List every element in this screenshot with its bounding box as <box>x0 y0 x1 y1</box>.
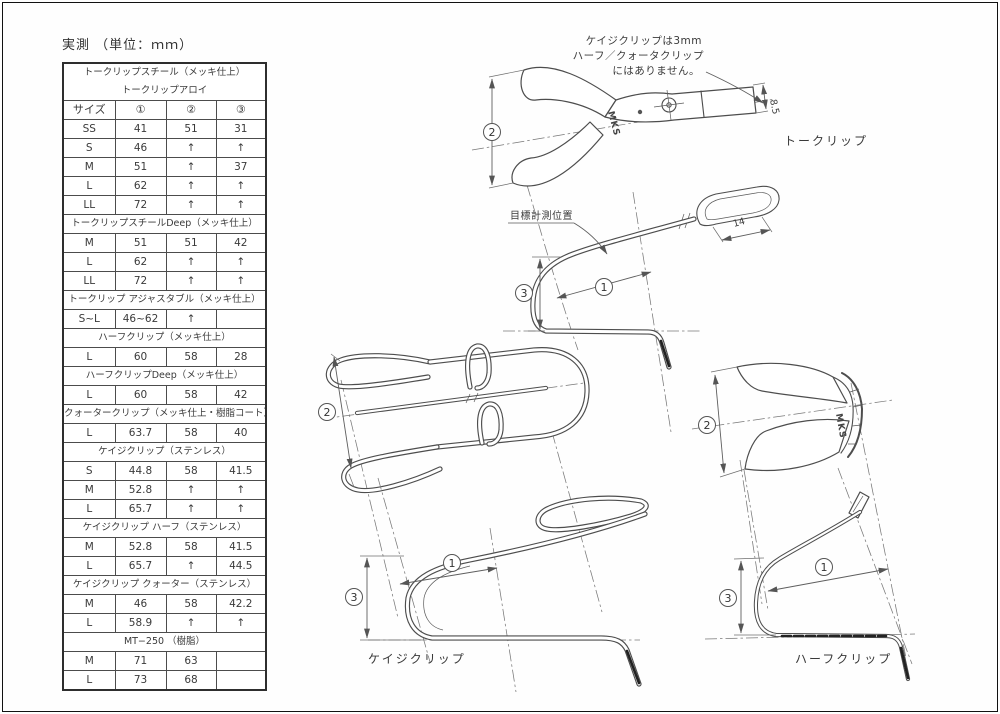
toe-clip-side-view: 3 1 14 目標計測位置 <box>503 186 779 367</box>
dim-circle-2: 2 <box>319 404 336 421</box>
small-rivet-icon <box>638 110 642 114</box>
dim-14: 14 <box>732 216 747 230</box>
dim-circle-3: 3 <box>516 285 533 302</box>
clip-profile-inner <box>533 219 694 367</box>
half-clip-top-view: MKS 2 <box>692 363 906 658</box>
cage-clip-side-view: 1 3 ケイジクリップ <box>346 478 647 692</box>
upper-prong <box>521 67 616 117</box>
lower-blade <box>745 419 849 470</box>
mount-stub <box>627 651 639 683</box>
svg-text:3: 3 <box>351 591 358 604</box>
spec-sheet-page: 実測 （単位：ｍｍ） トークリップスチール（メッキ仕上）トークリップアロイサイズ… <box>0 0 1000 714</box>
cage-note-line3: にはありません。 <box>612 65 700 77</box>
cage-clip-top-view: 2 <box>319 346 603 618</box>
dim-circle-3: 3 <box>720 590 737 607</box>
upper-blade <box>737 363 847 403</box>
mount-stub <box>901 648 908 678</box>
cage-clip-label: ケイジクリップ <box>368 652 466 666</box>
lower-prong <box>512 122 603 186</box>
half-clip-side-view: 1 3 ハーフクリップ <box>705 468 915 679</box>
construction-line <box>341 380 398 618</box>
svg-text:1: 1 <box>601 281 608 294</box>
dim-circle-1: 1 <box>444 555 461 572</box>
inner-wire <box>424 566 470 630</box>
dim-circle-2: 2 <box>699 417 716 434</box>
svg-text:1: 1 <box>821 561 828 574</box>
svg-text:3: 3 <box>725 592 732 605</box>
construction-line <box>851 383 906 658</box>
svg-text:1: 1 <box>449 557 456 570</box>
strap-plate <box>605 87 756 122</box>
construction-line <box>552 432 602 612</box>
technical-drawings: MKS 2 8.5 ケイジクリップは3mm ハーフ／クォータクリップ にはありま… <box>0 0 1000 714</box>
svg-text:2: 2 <box>324 406 331 419</box>
dim-circle-1: 1 <box>596 279 613 296</box>
svg-text:2: 2 <box>704 419 711 432</box>
dim-8-5: 8.5 <box>767 98 781 115</box>
dim-circle-1: 1 <box>816 559 833 576</box>
dim-circle-3: 3 <box>346 589 363 606</box>
dim-circle-2: 2 <box>484 124 501 141</box>
measure-position-label: 目標計測位置 <box>510 209 573 222</box>
toe-clip-label: トークリップ <box>784 134 868 148</box>
svg-text:3: 3 <box>521 287 528 300</box>
svg-text:2: 2 <box>489 126 496 139</box>
half-clip-label: ハーフクリップ <box>795 652 892 666</box>
cage-note-line2: ハーフ／クォータクリップ <box>573 50 704 62</box>
cage-note-line1: ケイジクリップは3mm <box>586 35 702 47</box>
